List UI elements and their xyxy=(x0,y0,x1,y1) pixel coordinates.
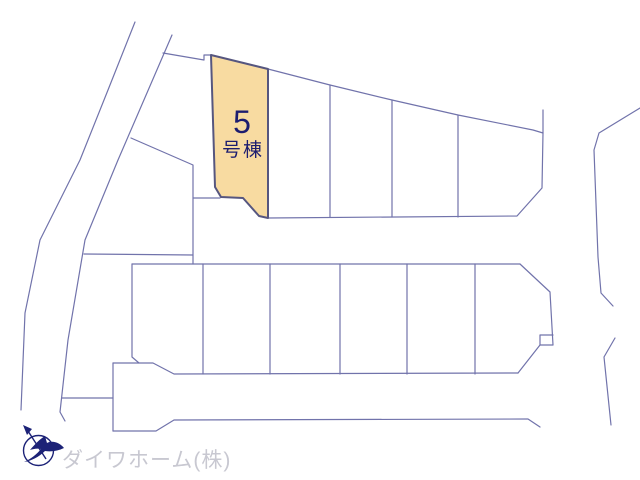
lot-5-number-label: 5 xyxy=(233,104,251,140)
site-plan-page: 5 号棟 ダイワホーム(株) xyxy=(0,0,640,480)
bottom-row-left-edge xyxy=(132,264,139,363)
compass-arrowhead xyxy=(23,425,32,435)
watermark-company-name: ダイワホーム(株) xyxy=(62,449,231,472)
bottom-row-right-notch xyxy=(540,335,553,345)
top-row-bottom-right-edge xyxy=(268,133,543,218)
lower-road-bottom-edge xyxy=(113,419,540,431)
road-left-line xyxy=(21,22,135,410)
lot-5-suffix-label: 号棟 xyxy=(222,139,264,161)
bottom-row-right-edge xyxy=(518,264,553,373)
bird-silhouette xyxy=(24,436,64,462)
lower-road-top-edge xyxy=(113,363,518,374)
right-street-lower-edge xyxy=(604,338,615,425)
left-parcel-boundary xyxy=(84,138,193,255)
upper-branch-line xyxy=(163,53,211,60)
right-street-upper-edge xyxy=(594,108,640,306)
site-plan-map: 5 号棟 ダイワホーム(株) xyxy=(0,0,640,480)
compass-bird-north-icon xyxy=(23,425,64,466)
boundary-lines xyxy=(21,22,640,431)
